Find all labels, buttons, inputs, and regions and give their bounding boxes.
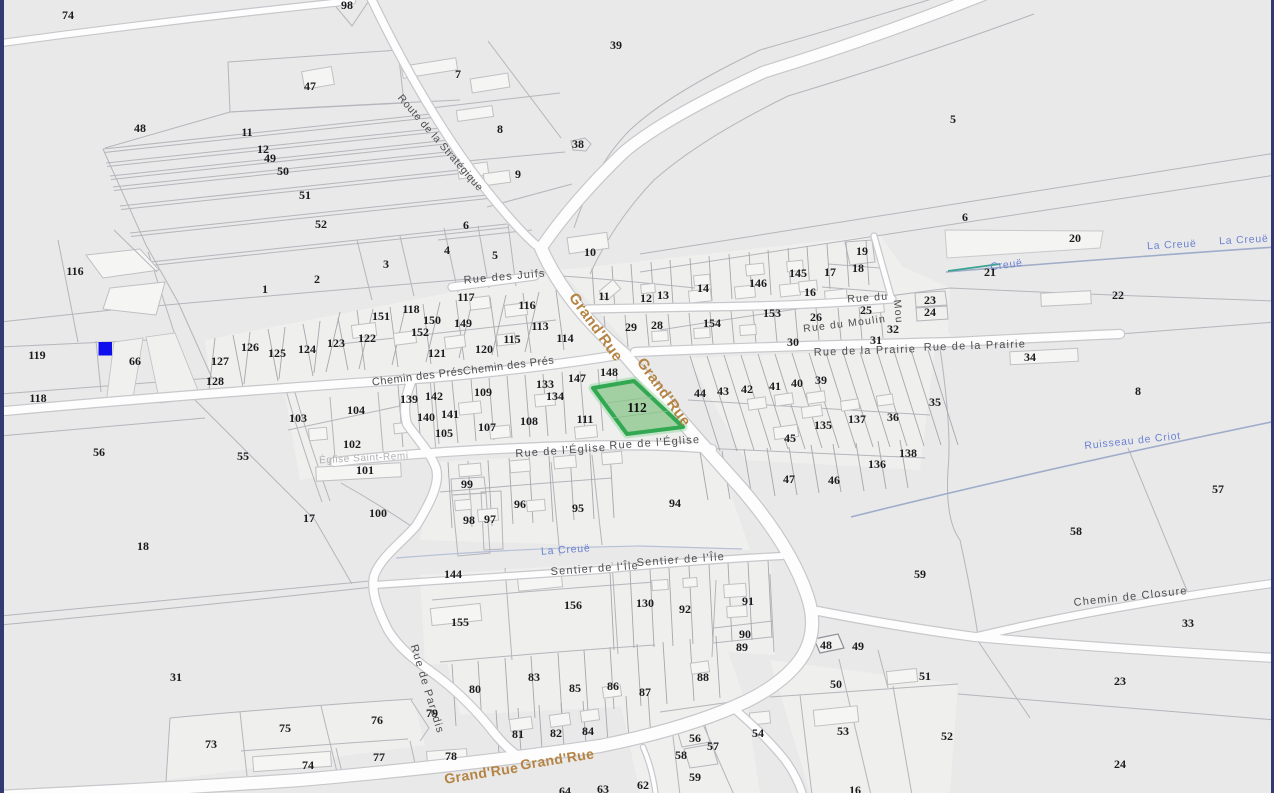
svg-text:89: 89 bbox=[736, 640, 748, 654]
svg-text:118: 118 bbox=[29, 391, 46, 405]
svg-text:62: 62 bbox=[637, 778, 649, 792]
svg-text:35: 35 bbox=[929, 395, 941, 409]
svg-text:14: 14 bbox=[697, 281, 709, 295]
svg-text:74: 74 bbox=[62, 8, 74, 22]
svg-text:99: 99 bbox=[461, 477, 473, 491]
svg-text:8: 8 bbox=[497, 122, 503, 136]
svg-text:Mou: Mou bbox=[891, 299, 905, 324]
svg-text:153: 153 bbox=[763, 306, 781, 320]
svg-text:64: 64 bbox=[559, 784, 571, 793]
svg-text:45: 45 bbox=[784, 431, 796, 445]
svg-text:96: 96 bbox=[514, 497, 526, 511]
svg-text:24: 24 bbox=[1114, 757, 1126, 771]
svg-text:82: 82 bbox=[550, 726, 562, 740]
svg-text:75: 75 bbox=[279, 721, 291, 735]
svg-text:81: 81 bbox=[512, 727, 524, 741]
svg-text:134: 134 bbox=[546, 389, 564, 403]
svg-text:47: 47 bbox=[783, 472, 795, 486]
svg-text:48: 48 bbox=[820, 638, 832, 652]
svg-text:24: 24 bbox=[924, 305, 936, 319]
svg-text:148: 148 bbox=[600, 365, 618, 379]
svg-text:55: 55 bbox=[237, 449, 249, 463]
svg-text:112: 112 bbox=[627, 400, 647, 415]
svg-text:149: 149 bbox=[454, 316, 472, 330]
svg-text:124: 124 bbox=[298, 342, 316, 356]
svg-text:90: 90 bbox=[739, 627, 751, 641]
svg-text:2: 2 bbox=[314, 272, 320, 286]
svg-text:117: 117 bbox=[457, 290, 474, 304]
svg-text:16: 16 bbox=[804, 285, 816, 299]
svg-text:30: 30 bbox=[787, 335, 799, 349]
svg-text:11: 11 bbox=[598, 289, 609, 303]
svg-text:59: 59 bbox=[689, 770, 701, 784]
svg-text:144: 144 bbox=[444, 567, 462, 581]
svg-text:59: 59 bbox=[914, 567, 926, 581]
svg-text:9: 9 bbox=[515, 167, 521, 181]
svg-text:52: 52 bbox=[941, 729, 953, 743]
svg-text:11: 11 bbox=[241, 125, 252, 139]
svg-text:120: 120 bbox=[475, 342, 493, 356]
svg-text:17: 17 bbox=[824, 265, 836, 279]
svg-text:118: 118 bbox=[402, 302, 419, 316]
svg-text:21: 21 bbox=[984, 265, 996, 279]
svg-text:10: 10 bbox=[584, 245, 596, 259]
svg-text:58: 58 bbox=[675, 748, 687, 762]
svg-text:126: 126 bbox=[241, 340, 259, 354]
svg-text:77: 77 bbox=[373, 750, 385, 764]
svg-text:57: 57 bbox=[707, 739, 719, 753]
svg-text:125: 125 bbox=[268, 346, 286, 360]
svg-text:109: 109 bbox=[474, 385, 492, 399]
svg-text:111: 111 bbox=[577, 412, 594, 426]
svg-text:19: 19 bbox=[856, 244, 868, 258]
svg-text:86: 86 bbox=[607, 679, 619, 693]
svg-text:83: 83 bbox=[528, 670, 540, 684]
svg-text:145: 145 bbox=[789, 266, 807, 280]
svg-text:92: 92 bbox=[679, 602, 691, 616]
svg-text:91: 91 bbox=[742, 594, 754, 608]
svg-text:41: 41 bbox=[769, 379, 781, 393]
svg-text:85: 85 bbox=[569, 681, 581, 695]
svg-text:44: 44 bbox=[694, 386, 706, 400]
svg-text:39: 39 bbox=[610, 38, 622, 52]
svg-text:114: 114 bbox=[556, 331, 573, 345]
svg-text:7: 7 bbox=[455, 67, 461, 81]
svg-text:54: 54 bbox=[752, 726, 764, 740]
svg-text:66: 66 bbox=[129, 354, 141, 368]
svg-text:94: 94 bbox=[669, 496, 681, 510]
svg-text:87: 87 bbox=[639, 685, 651, 699]
svg-text:115: 115 bbox=[503, 332, 520, 346]
svg-text:49: 49 bbox=[852, 639, 864, 653]
svg-text:116: 116 bbox=[518, 298, 535, 312]
svg-text:18: 18 bbox=[852, 261, 864, 275]
svg-text:56: 56 bbox=[93, 445, 105, 459]
svg-text:18: 18 bbox=[137, 539, 149, 553]
svg-text:50: 50 bbox=[830, 677, 842, 691]
svg-text:147: 147 bbox=[568, 371, 586, 385]
svg-text:88: 88 bbox=[697, 670, 709, 684]
svg-text:51: 51 bbox=[919, 669, 931, 683]
svg-text:6: 6 bbox=[463, 218, 469, 232]
svg-text:6: 6 bbox=[962, 210, 968, 224]
svg-text:121: 121 bbox=[428, 346, 446, 360]
svg-text:32: 32 bbox=[887, 322, 899, 336]
svg-text:22: 22 bbox=[1112, 288, 1124, 302]
svg-text:17: 17 bbox=[303, 511, 315, 525]
svg-text:146: 146 bbox=[749, 276, 767, 290]
svg-text:31: 31 bbox=[870, 333, 882, 347]
svg-text:101: 101 bbox=[356, 463, 374, 477]
svg-text:31: 31 bbox=[170, 670, 182, 684]
svg-text:135: 135 bbox=[814, 418, 832, 432]
svg-text:13: 13 bbox=[657, 288, 669, 302]
svg-text:97: 97 bbox=[484, 512, 496, 526]
svg-text:4: 4 bbox=[444, 243, 450, 257]
svg-text:28: 28 bbox=[651, 318, 663, 332]
svg-text:107: 107 bbox=[478, 420, 496, 434]
svg-text:39: 39 bbox=[815, 373, 827, 387]
svg-text:139: 139 bbox=[400, 392, 418, 406]
svg-text:95: 95 bbox=[572, 501, 584, 515]
svg-text:3: 3 bbox=[383, 257, 389, 271]
svg-text:128: 128 bbox=[206, 374, 224, 388]
svg-text:12: 12 bbox=[640, 291, 652, 305]
svg-text:116: 116 bbox=[66, 264, 83, 278]
svg-text:100: 100 bbox=[369, 506, 387, 520]
svg-text:33: 33 bbox=[1182, 616, 1194, 630]
svg-text:138: 138 bbox=[899, 446, 917, 460]
svg-text:74: 74 bbox=[302, 758, 314, 772]
svg-text:103: 103 bbox=[289, 411, 307, 425]
svg-text:20: 20 bbox=[1069, 231, 1081, 245]
svg-text:113: 113 bbox=[531, 319, 548, 333]
svg-text:156: 156 bbox=[564, 598, 582, 612]
svg-text:154: 154 bbox=[703, 316, 721, 330]
svg-text:80: 80 bbox=[469, 682, 481, 696]
svg-text:142: 142 bbox=[425, 389, 443, 403]
svg-text:130: 130 bbox=[636, 596, 654, 610]
svg-text:48: 48 bbox=[134, 121, 146, 135]
svg-text:76: 76 bbox=[371, 713, 383, 727]
svg-text:73: 73 bbox=[205, 737, 217, 751]
svg-text:5: 5 bbox=[950, 112, 956, 126]
svg-text:42: 42 bbox=[741, 382, 753, 396]
svg-text:98: 98 bbox=[463, 513, 475, 527]
svg-text:56: 56 bbox=[689, 731, 701, 745]
svg-text:40: 40 bbox=[791, 376, 803, 390]
svg-text:43: 43 bbox=[717, 384, 729, 398]
svg-text:26: 26 bbox=[810, 310, 822, 324]
svg-text:155: 155 bbox=[451, 615, 469, 629]
svg-text:23: 23 bbox=[1114, 674, 1126, 688]
svg-text:127: 127 bbox=[211, 354, 229, 368]
svg-text:57: 57 bbox=[1212, 482, 1224, 496]
svg-text:46: 46 bbox=[828, 473, 840, 487]
svg-text:51: 51 bbox=[299, 188, 311, 202]
svg-text:34: 34 bbox=[1024, 350, 1036, 364]
svg-text:5: 5 bbox=[492, 248, 498, 262]
svg-text:105: 105 bbox=[435, 426, 453, 440]
svg-text:79: 79 bbox=[426, 706, 438, 720]
svg-text:36: 36 bbox=[887, 410, 899, 424]
svg-text:53: 53 bbox=[837, 724, 849, 738]
svg-text:122: 122 bbox=[358, 331, 376, 345]
svg-text:141: 141 bbox=[441, 407, 459, 421]
svg-text:49: 49 bbox=[264, 151, 276, 165]
svg-text:98: 98 bbox=[341, 0, 353, 12]
svg-text:137: 137 bbox=[848, 412, 866, 426]
svg-text:119: 119 bbox=[28, 348, 45, 362]
svg-text:152: 152 bbox=[411, 325, 429, 339]
svg-text:136: 136 bbox=[868, 457, 886, 471]
svg-text:102: 102 bbox=[343, 437, 361, 451]
svg-text:140: 140 bbox=[417, 410, 435, 424]
svg-text:78: 78 bbox=[445, 749, 457, 763]
svg-text:63: 63 bbox=[597, 782, 609, 793]
svg-text:84: 84 bbox=[582, 724, 594, 738]
svg-text:16: 16 bbox=[849, 783, 861, 793]
svg-text:104: 104 bbox=[347, 403, 365, 417]
svg-text:29: 29 bbox=[625, 320, 637, 334]
svg-text:8: 8 bbox=[1135, 384, 1141, 398]
svg-text:52: 52 bbox=[315, 217, 327, 231]
svg-text:151: 151 bbox=[372, 309, 390, 323]
svg-text:58: 58 bbox=[1070, 524, 1082, 538]
svg-text:108: 108 bbox=[520, 414, 538, 428]
svg-text:50: 50 bbox=[277, 164, 289, 178]
svg-text:123: 123 bbox=[327, 336, 345, 350]
svg-text:47: 47 bbox=[304, 79, 316, 93]
svg-text:38: 38 bbox=[572, 137, 584, 151]
svg-text:25: 25 bbox=[860, 303, 872, 317]
svg-text:1: 1 bbox=[262, 282, 268, 296]
